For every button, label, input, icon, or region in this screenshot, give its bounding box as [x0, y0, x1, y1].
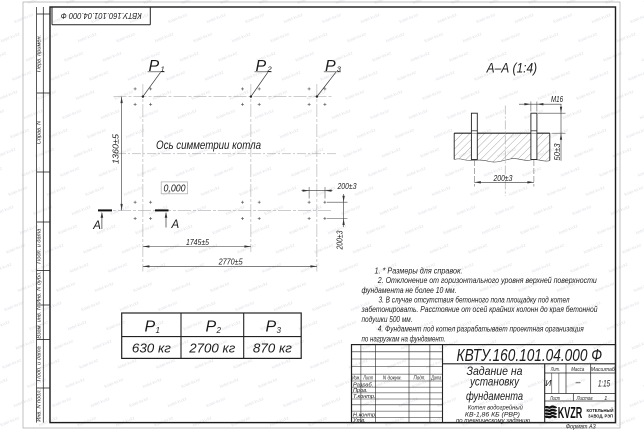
- svg-text:2: 2: [216, 326, 222, 335]
- svg-text:kotel-kv.kz: kotel-kv.kz: [631, 338, 644, 350]
- svg-text:kotel-kv.kz: kotel-kv.kz: [0, 108, 5, 120]
- svg-text:kotel-kv.kz: kotel-kv.kz: [0, 166, 3, 178]
- svg-text:kotel-kv.kz: kotel-kv.kz: [221, 319, 241, 331]
- svg-text:1. * Размеры для справок.: 1. * Размеры для справок.: [375, 266, 463, 275]
- svg-text:kotel-kv.kz: kotel-kv.kz: [391, 242, 411, 254]
- svg-text:kotel-kv.kz: kotel-kv.kz: [352, 242, 372, 254]
- svg-text:kotel-kv.kz: kotel-kv.kz: [572, 204, 592, 216]
- svg-text:kotel-kv.kz: kotel-kv.kz: [539, 31, 559, 43]
- svg-text:P: P: [149, 58, 160, 75]
- svg-text:kotel-kv.kz: kotel-kv.kz: [0, 31, 20, 43]
- svg-text:kotel-kv.kz: kotel-kv.kz: [302, 204, 322, 216]
- svg-text:kotel-kv.kz: kotel-kv.kz: [273, 300, 293, 312]
- svg-text:kotel-kv.kz: kotel-kv.kz: [399, 12, 419, 24]
- svg-text:kotel-kv.kz: kotel-kv.kz: [383, 89, 403, 101]
- svg-text:kotel-kv.kz: kotel-kv.kz: [406, 166, 426, 178]
- svg-text:kotel-kv.kz: kotel-kv.kz: [218, 50, 238, 62]
- svg-text:kotel-kv.kz: kotel-kv.kz: [622, 242, 642, 254]
- svg-text:kotel-kv.kz: kotel-kv.kz: [235, 300, 255, 312]
- svg-text:kotel-kv.kz: kotel-kv.kz: [254, 108, 274, 120]
- svg-text:kotel-kv.kz: kotel-kv.kz: [578, 31, 598, 43]
- svg-text:3. В случае отсутствия бетонн: 3. В случае отсутствия бетонного пола пл…: [379, 296, 570, 305]
- svg-text:kotel-kv.kz: kotel-kv.kz: [187, 204, 207, 216]
- svg-text:KVZR: KVZR: [558, 405, 583, 422]
- svg-text:kotel-kv.kz: kotel-kv.kz: [558, 223, 578, 235]
- svg-text:kotel-kv.kz: kotel-kv.kz: [75, 89, 95, 101]
- svg-text:Инв. N подл.: Инв. N подл.: [36, 389, 42, 422]
- svg-text:kotel-kv.kz: kotel-kv.kz: [345, 89, 365, 101]
- svg-text:kotel-kv.kz: kotel-kv.kz: [279, 127, 299, 139]
- svg-text:Перв. примен.: Перв. примен.: [36, 35, 42, 72]
- svg-text:kotel-kv.kz: kotel-kv.kz: [356, 127, 376, 139]
- svg-text:P: P: [266, 319, 277, 336]
- svg-text:kotel-kv.kz: kotel-kv.kz: [628, 70, 644, 82]
- svg-text:kotel-kv.kz: kotel-kv.kz: [219, 377, 239, 389]
- svg-text:kotel-kv.kz: kotel-kv.kz: [85, 185, 105, 197]
- svg-text:Инв. N дубл.: Инв. N дубл.: [36, 272, 42, 304]
- svg-text:kotel-kv.kz: kotel-kv.kz: [583, 242, 603, 254]
- svg-text:kotel-kv.kz: kotel-kv.kz: [204, 70, 224, 82]
- svg-text:kotel-kv.kz: kotel-kv.kz: [637, 166, 644, 178]
- svg-text:kotel-kv.kz: kotel-kv.kz: [268, 89, 288, 101]
- svg-text:kotel-kv.kz: kotel-kv.kz: [133, 281, 153, 293]
- svg-text:kotel-kv.kz: kotel-kv.kz: [0, 415, 20, 427]
- svg-text:200±3: 200±3: [335, 230, 344, 250]
- svg-text:1: 1: [604, 396, 607, 402]
- svg-text:kotel-kv.kz: kotel-kv.kz: [100, 108, 120, 120]
- svg-text:kotel-kv.kz: kotel-kv.kz: [470, 185, 490, 197]
- svg-text:kotel-kv.kz: kotel-kv.kz: [277, 185, 297, 197]
- svg-text:kotel-kv.kz: kotel-kv.kz: [435, 70, 455, 82]
- svg-text:kotel-kv.kz: kotel-kv.kz: [528, 0, 548, 5]
- svg-text:по нагрузкам на фундамент.: по нагрузкам на фундамент.: [362, 334, 446, 343]
- svg-text:Изм.: Изм.: [352, 376, 360, 382]
- svg-text:kotel-kv.kz: kotel-kv.kz: [360, 12, 380, 24]
- svg-text:kotel-kv.kz: kotel-kv.kz: [395, 127, 415, 139]
- svg-text:Лист: Лист: [549, 396, 560, 402]
- svg-text:Утв.: Утв.: [352, 418, 366, 424]
- svg-text:kotel-kv.kz: kotel-kv.kz: [58, 223, 78, 235]
- svg-text:kotel-kv.kz: kotel-kv.kz: [595, 281, 615, 293]
- svg-text:kotel-kv.kz: kotel-kv.kz: [258, 0, 278, 5]
- svg-text:kotel-kv.kz: kotel-kv.kz: [81, 300, 101, 312]
- svg-text:kotel-kv.kz: kotel-kv.kz: [17, 281, 37, 293]
- svg-text:kotel-kv.kz: kotel-kv.kz: [23, 108, 43, 120]
- svg-text:kotel-kv.kz: kotel-kv.kz: [212, 223, 232, 235]
- svg-text:kotel-kv.kz: kotel-kv.kz: [275, 242, 295, 254]
- svg-text:kotel-kv.kz: kotel-kv.kz: [129, 396, 149, 408]
- svg-text:КВТУ.160.101.04.000 Ф: КВТУ.160.101.04.000 Ф: [457, 345, 603, 365]
- svg-text:kotel-kv.kz: kotel-kv.kz: [616, 31, 636, 43]
- svg-text:kotel-kv.kz: kotel-kv.kz: [50, 70, 70, 82]
- svg-text:Справ. N: Справ. N: [36, 120, 42, 144]
- svg-text:kotel-kv.kz: kotel-kv.kz: [587, 127, 607, 139]
- svg-text:–: –: [574, 377, 581, 387]
- svg-text:kotel-kv.kz: kotel-kv.kz: [65, 377, 85, 389]
- svg-text:kotel-kv.kz: kotel-kv.kz: [179, 50, 199, 62]
- svg-text:kotel-kv.kz: kotel-kv.kz: [121, 242, 141, 254]
- svg-text:kotel-kv.kz: kotel-kv.kz: [206, 396, 226, 408]
- svg-text:kotel-kv.kz: kotel-kv.kz: [551, 70, 571, 82]
- svg-text:kotel-kv.kz: kotel-kv.kz: [108, 262, 128, 274]
- svg-text:kotel-kv.kz: kotel-kv.kz: [210, 281, 230, 293]
- svg-text:kotel-kv.kz: kotel-kv.kz: [450, 377, 470, 389]
- svg-text:kotel-kv.kz: kotel-kv.kz: [139, 108, 159, 120]
- svg-text:kotel-kv.kz: kotel-kv.kz: [175, 166, 195, 178]
- svg-text:kotel-kv.kz: kotel-kv.kz: [385, 415, 405, 427]
- svg-text:2700 кг: 2700 кг: [188, 341, 235, 355]
- svg-text:Формат А3: Формат А3: [566, 423, 596, 430]
- svg-text:kotel-kv.kz: kotel-kv.kz: [443, 223, 463, 235]
- svg-text:КВТУ.160.101.04.000 Ф: КВТУ.160.101.04.000 Ф: [60, 11, 142, 20]
- svg-text:kotel-kv.kz: kotel-kv.kz: [44, 242, 64, 254]
- svg-text:kotel-kv.kz: kotel-kv.kz: [0, 204, 14, 216]
- svg-text:kotel-kv.kz: kotel-kv.kz: [343, 146, 363, 158]
- svg-text:kotel-kv.kz: kotel-kv.kz: [12, 70, 32, 82]
- svg-text:kotel-kv.kz: kotel-kv.kz: [366, 223, 386, 235]
- svg-text:kotel-kv.kz: kotel-kv.kz: [87, 127, 107, 139]
- svg-text:kotel-kv.kz: kotel-kv.kz: [429, 242, 449, 254]
- svg-text:kotel-kv.kz: kotel-kv.kz: [64, 50, 84, 62]
- svg-text:Дата: Дата: [430, 376, 441, 382]
- svg-text:kotel-kv.kz: kotel-kv.kz: [635, 223, 644, 235]
- svg-text:kotel-kv.kz: kotel-kv.kz: [110, 204, 130, 216]
- svg-text:kotel-kv.kz: kotel-kv.kz: [27, 0, 47, 5]
- svg-text:kotel-kv.kz: kotel-kv.kz: [102, 50, 122, 62]
- svg-text:kotel-kv.kz: kotel-kv.kz: [514, 12, 534, 24]
- svg-text:kotel-kv.kz: kotel-kv.kz: [202, 127, 222, 139]
- svg-text:kotel-kv.kz: kotel-kv.kz: [181, 377, 201, 389]
- svg-text:kotel-kv.kz: kotel-kv.kz: [616, 415, 636, 427]
- svg-text:0,000: 0,000: [164, 182, 186, 194]
- svg-text:kotel-kv.kz: kotel-kv.kz: [142, 377, 162, 389]
- svg-text:kotel-kv.kz: kotel-kv.kz: [412, 0, 432, 5]
- svg-text:kotel-kv.kz: kotel-kv.kz: [372, 50, 392, 62]
- svg-text:kotel-kv.kz: kotel-kv.kz: [79, 358, 99, 370]
- svg-text:kotel-kv.kz: kotel-kv.kz: [606, 319, 626, 331]
- svg-text:kotel-kv.kz: kotel-kv.kz: [46, 185, 66, 197]
- svg-text:1745±5: 1745±5: [186, 238, 209, 247]
- svg-text:kotel-kv.kz: kotel-kv.kz: [499, 89, 519, 101]
- svg-text:kotel-kv.kz: kotel-kv.kz: [77, 415, 97, 427]
- svg-text:kotel-kv.kz: kotel-kv.kz: [318, 127, 338, 139]
- svg-text:kotel-kv.kz: kotel-kv.kz: [304, 146, 324, 158]
- svg-text:1360±5: 1360±5: [111, 134, 121, 164]
- svg-text:kotel-kv.kz: kotel-kv.kz: [633, 281, 644, 293]
- svg-text:kotel-kv.kz: kotel-kv.kz: [146, 262, 166, 274]
- svg-text:kotel-kv.kz: kotel-kv.kz: [620, 300, 640, 312]
- svg-text:забетонировать. Расстояние от: забетонировать. Расстояние от осей крайн…: [361, 305, 598, 314]
- svg-text:kotel-kv.kz: kotel-kv.kz: [206, 12, 226, 24]
- svg-text:kotel-kv.kz: kotel-kv.kz: [410, 50, 430, 62]
- svg-text:kotel-kv.kz: kotel-kv.kz: [166, 70, 186, 82]
- svg-text:kotel-kv.kz: kotel-kv.kz: [4, 300, 24, 312]
- svg-text:kotel-kv.kz: kotel-kv.kz: [119, 300, 139, 312]
- svg-text:2. Отклонение от горизонтальн: 2. Отклонение от горизонтального уровня …: [377, 276, 597, 285]
- svg-text:kotel-kv.kz: kotel-kv.kz: [92, 338, 112, 350]
- svg-text:kotel-kv.kz: kotel-kv.kz: [73, 146, 93, 158]
- svg-text:kotel-kv.kz: kotel-kv.kz: [445, 166, 465, 178]
- svg-text:kotel-kv.kz: kotel-kv.kz: [601, 108, 621, 120]
- svg-text:N докум.: N докум.: [383, 376, 402, 382]
- svg-text:P: P: [325, 58, 336, 75]
- svg-text:kotel-kv.kz: kotel-kv.kz: [468, 242, 488, 254]
- svg-text:kotel-kv.kz: kotel-kv.kz: [531, 262, 551, 274]
- svg-text:kotel-kv.kz: kotel-kv.kz: [296, 377, 316, 389]
- svg-text:kotel-kv.kz: kotel-kv.kz: [0, 377, 8, 389]
- svg-text:kotel-kv.kz: kotel-kv.kz: [177, 108, 197, 120]
- svg-text:kotel-kv.kz: kotel-kv.kz: [325, 281, 345, 293]
- svg-text:kotel-kv.kz: kotel-kv.kz: [533, 204, 553, 216]
- svg-text:kotel-kv.kz: kotel-kv.kz: [214, 166, 234, 178]
- svg-text:Подп. и дата: Подп. и дата: [36, 346, 42, 381]
- svg-text:kotel-kv.kz: kotel-kv.kz: [570, 262, 590, 274]
- svg-text:kotel-kv.kz: kotel-kv.kz: [597, 223, 617, 235]
- svg-text:kotel-kv.kz: kotel-kv.kz: [252, 166, 272, 178]
- svg-text:4. Фундамент под котел разраб: 4. Фундамент под котел разрабатывает про…: [378, 325, 585, 334]
- svg-text:kotel-kv.kz: kotel-kv.kz: [422, 89, 442, 101]
- svg-text:kotel-kv.kz: kotel-kv.kz: [160, 242, 180, 254]
- svg-text:kotel-kv.kz: kotel-kv.kz: [358, 70, 378, 82]
- svg-text:kotel-kv.kz: kotel-kv.kz: [66, 0, 86, 5]
- svg-text:kotel-kv.kz: kotel-kv.kz: [605, 0, 625, 5]
- svg-text:kotel-kv.kz: kotel-kv.kz: [0, 0, 9, 5]
- svg-text:kotel-kv.kz: kotel-kv.kz: [423, 415, 443, 427]
- svg-text:kotel-kv.kz: kotel-kv.kz: [566, 0, 586, 5]
- svg-text:kotel-kv.kz: kotel-kv.kz: [250, 223, 270, 235]
- svg-text:kotel-kv.kz: kotel-kv.kz: [591, 12, 611, 24]
- svg-text:kotel-kv.kz: kotel-kv.kz: [322, 12, 342, 24]
- svg-text:kotel-kv.kz: kotel-kv.kz: [35, 146, 55, 158]
- svg-text:kotel-kv.kz: kotel-kv.kz: [630, 12, 644, 24]
- svg-text:kotel-kv.kz: kotel-kv.kz: [310, 358, 330, 370]
- svg-text:3: 3: [337, 65, 342, 74]
- svg-text:kotel-kv.kz: kotel-kv.kz: [123, 185, 143, 197]
- svg-text:kotel-kv.kz: kotel-kv.kz: [37, 89, 57, 101]
- svg-text:kotel-kv.kz: kotel-kv.kz: [239, 185, 259, 197]
- svg-text:kotel-kv.kz: kotel-kv.kz: [591, 396, 611, 408]
- svg-text:kotel-kv.kz: kotel-kv.kz: [264, 204, 284, 216]
- svg-text:kotel-kv.kz: kotel-kv.kz: [67, 319, 87, 331]
- svg-text:kotel-kv.kz: kotel-kv.kz: [624, 185, 644, 197]
- svg-text:Лит.: Лит.: [550, 367, 560, 373]
- svg-text:kotel-kv.kz: kotel-kv.kz: [437, 12, 457, 24]
- svg-text:kotel-kv.kz: kotel-kv.kz: [398, 396, 418, 408]
- svg-text:kotel-kv.kz: kotel-kv.kz: [370, 108, 390, 120]
- svg-text:kotel-kv.kz: kotel-kv.kz: [614, 89, 634, 101]
- svg-text:КОТЕЛЬНЫЙ: КОТЕЛЬНЫЙ: [587, 406, 614, 413]
- svg-text:kotel-kv.kz: kotel-kv.kz: [481, 223, 501, 235]
- svg-text:kotel-kv.kz: kotel-kv.kz: [308, 415, 328, 427]
- svg-text:kotel-kv.kz: kotel-kv.kz: [387, 358, 407, 370]
- svg-text:kotel-kv.kz: kotel-kv.kz: [283, 396, 303, 408]
- svg-text:kotel-kv.kz: kotel-kv.kz: [495, 204, 515, 216]
- svg-text:kotel-kv.kz: kotel-kv.kz: [169, 338, 189, 350]
- svg-text:kotel-kv.kz: kotel-kv.kz: [381, 146, 401, 158]
- svg-text:kotel-kv.kz: kotel-kv.kz: [104, 0, 124, 5]
- svg-text:kotel-kv.kz: kotel-kv.kz: [216, 108, 236, 120]
- svg-text:kotel-kv.kz: kotel-kv.kz: [476, 12, 496, 24]
- svg-text:kotel-kv.kz: kotel-kv.kz: [158, 300, 178, 312]
- svg-text:kotel-kv.kz: kotel-kv.kz: [167, 396, 187, 408]
- svg-text:kotel-kv.kz: kotel-kv.kz: [323, 338, 343, 350]
- svg-text:kotel-kv.kz: kotel-kv.kz: [553, 12, 573, 24]
- svg-text:kotel-kv.kz: kotel-kv.kz: [266, 146, 286, 158]
- svg-text:kotel-kv.kz: kotel-kv.kz: [117, 358, 137, 370]
- svg-text:kotel-kv.kz: kotel-kv.kz: [2, 358, 22, 370]
- svg-text:kotel-kv.kz: kotel-kv.kz: [71, 204, 91, 216]
- svg-text:kotel-kv.kz: kotel-kv.kz: [321, 396, 341, 408]
- svg-text:kotel-kv.kz: kotel-kv.kz: [608, 262, 628, 274]
- svg-text:kotel-kv.kz: kotel-kv.kz: [248, 281, 268, 293]
- svg-text:Масштаб: Масштаб: [591, 367, 616, 373]
- svg-text:установку: установку: [469, 375, 520, 389]
- svg-text:kotel-kv.kz: kotel-kv.kz: [154, 415, 174, 427]
- svg-text:kotel-kv.kz: kotel-kv.kz: [10, 127, 30, 139]
- svg-text:50±3: 50±3: [553, 143, 562, 161]
- svg-text:kotel-kv.kz: kotel-kv.kz: [339, 262, 359, 274]
- svg-text:kotel-kv.kz: kotel-kv.kz: [368, 166, 388, 178]
- svg-text:630 кг: 630 кг: [132, 341, 171, 355]
- svg-text:kotel-kv.kz: kotel-kv.kz: [576, 89, 596, 101]
- svg-text:kotel-kv.kz: kotel-kv.kz: [424, 31, 444, 43]
- svg-text:kotel-kv.kz: kotel-kv.kz: [281, 70, 301, 82]
- svg-text:kotel-kv.kz: kotel-kv.kz: [83, 242, 103, 254]
- svg-text:kotel-kv.kz: kotel-kv.kz: [312, 300, 332, 312]
- svg-text:kotel-kv.kz: kotel-kv.kz: [501, 31, 521, 43]
- svg-text:1:15: 1:15: [598, 378, 610, 389]
- svg-text:kotel-kv.kz: kotel-kv.kz: [237, 242, 257, 254]
- svg-text:kotel-kv.kz: kotel-kv.kz: [98, 166, 118, 178]
- svg-text:1: 1: [156, 326, 160, 335]
- svg-text:kotel-kv.kz: kotel-kv.kz: [508, 185, 528, 197]
- svg-text:kotel-kv.kz: kotel-kv.kz: [8, 185, 28, 197]
- svg-text:kotel-kv.kz: kotel-kv.kz: [291, 166, 311, 178]
- svg-text:kotel-kv.kz: kotel-kv.kz: [181, 0, 201, 5]
- svg-text:kotel-kv.kz: kotel-kv.kz: [15, 338, 35, 350]
- svg-text:kotel-kv.kz: kotel-kv.kz: [408, 108, 428, 120]
- svg-text:870 кг: 870 кг: [253, 341, 292, 355]
- svg-text:Ось симметрии котла: Ось симметрии котла: [156, 140, 261, 152]
- svg-text:A: A: [92, 220, 101, 232]
- svg-text:kotel-kv.kz: kotel-kv.kz: [69, 262, 89, 274]
- svg-text:kotel-kv.kz: kotel-kv.kz: [62, 108, 82, 120]
- svg-text:kotel-kv.kz: kotel-kv.kz: [404, 223, 424, 235]
- svg-text:kotel-kv.kz: kotel-kv.kz: [115, 415, 135, 427]
- svg-text:kotel-kv.kz: kotel-kv.kz: [331, 108, 351, 120]
- svg-text:kotel-kv.kz: kotel-kv.kz: [545, 242, 565, 254]
- svg-text:kotel-kv.kz: kotel-kv.kz: [420, 146, 440, 158]
- svg-text:kotel-kv.kz: kotel-kv.kz: [229, 89, 249, 101]
- svg-text:kotel-kv.kz: kotel-kv.kz: [460, 89, 480, 101]
- svg-text:kotel-kv.kz: kotel-kv.kz: [385, 31, 405, 43]
- svg-text:200±3: 200±3: [493, 173, 513, 183]
- svg-text:kotel-kv.kz: kotel-kv.kz: [618, 358, 638, 370]
- svg-text:kotel-kv.kz: kotel-kv.kz: [262, 262, 282, 274]
- svg-text:ЗАВОД, РЭП: ЗАВОД, РЭП: [588, 413, 613, 418]
- svg-text:kotel-kv.kz: kotel-kv.kz: [0, 319, 10, 331]
- svg-text:kotel-kv.kz: kotel-kv.kz: [271, 358, 291, 370]
- svg-text:kotel-kv.kz: kotel-kv.kz: [171, 281, 191, 293]
- svg-text:kotel-kv.kz: kotel-kv.kz: [456, 204, 476, 216]
- svg-text:kotel-kv.kz: kotel-kv.kz: [0, 262, 12, 274]
- svg-text:kotel-kv.kz: kotel-kv.kz: [48, 127, 68, 139]
- svg-text:kotel-kv.kz: kotel-kv.kz: [397, 70, 417, 82]
- svg-text:M16: M16: [551, 95, 563, 104]
- svg-text:kotel-kv.kz: kotel-kv.kz: [77, 31, 97, 43]
- svg-text:kotel-kv.kz: kotel-kv.kz: [168, 12, 188, 24]
- svg-text:kotel-kv.kz: kotel-kv.kz: [220, 0, 240, 5]
- svg-text:kotel-kv.kz: kotel-kv.kz: [196, 300, 216, 312]
- svg-text:Масса: Масса: [571, 367, 584, 373]
- svg-text:kotel-kv.kz: kotel-kv.kz: [314, 242, 334, 254]
- svg-text:kotel-kv.kz: kotel-kv.kz: [244, 396, 264, 408]
- svg-text:kotel-kv.kz: kotel-kv.kz: [245, 12, 265, 24]
- svg-text:Котел водогрейный: Котел водогрейный: [468, 403, 523, 411]
- svg-text:kotel-kv.kz: kotel-kv.kz: [329, 166, 349, 178]
- svg-text:A: A: [171, 219, 180, 231]
- svg-text:kotel-kv.kz: kotel-kv.kz: [283, 12, 303, 24]
- svg-text:kotel-kv.kz: kotel-kv.kz: [333, 50, 353, 62]
- svg-text:Подп.: Подп.: [414, 376, 426, 382]
- svg-text:kotel-kv.kz: kotel-kv.kz: [639, 108, 644, 120]
- svg-text:kotel-kv.kz: kotel-kv.kz: [585, 185, 605, 197]
- svg-text:kotel-kv.kz: kotel-kv.kz: [127, 70, 147, 82]
- svg-text:kotel-kv.kz: kotel-kv.kz: [547, 185, 567, 197]
- svg-text:kotel-kv.kz: kotel-kv.kz: [437, 396, 457, 408]
- svg-text:kotel-kv.kz: kotel-kv.kz: [447, 108, 467, 120]
- svg-text:фундамента: фундамента: [466, 389, 523, 403]
- svg-text:kotel-kv.kz: kotel-kv.kz: [225, 204, 245, 216]
- svg-text:kotel-kv.kz: kotel-kv.kz: [269, 415, 289, 427]
- svg-text:P: P: [256, 58, 267, 75]
- svg-text:kotel-kv.kz: kotel-kv.kz: [56, 281, 76, 293]
- svg-text:kotel-kv.kz: kotel-kv.kz: [114, 89, 134, 101]
- svg-text:200±3: 200±3: [337, 182, 357, 191]
- svg-text:Т.контр.: Т.контр.: [353, 394, 376, 400]
- svg-text:И: И: [545, 378, 552, 388]
- svg-text:kotel-kv.kz: kotel-kv.kz: [629, 396, 644, 408]
- svg-text:kotel-kv.kz: kotel-kv.kz: [183, 319, 203, 331]
- svg-text:kotel-kv.kz: kotel-kv.kz: [14, 12, 34, 24]
- svg-text:kotel-kv.kz: kotel-kv.kz: [89, 70, 109, 82]
- svg-text:kotel-kv.kz: kotel-kv.kz: [154, 31, 174, 43]
- svg-text:kotel-kv.kz: kotel-kv.kz: [354, 185, 374, 197]
- svg-text:kotel-kv.kz: kotel-kv.kz: [493, 262, 513, 274]
- svg-text:Листов: Листов: [576, 396, 593, 402]
- svg-text:kotel-kv.kz: kotel-kv.kz: [297, 0, 317, 5]
- svg-text:2770±5: 2770±5: [218, 258, 243, 267]
- svg-text:kotel-kv.kz: kotel-kv.kz: [137, 166, 157, 178]
- svg-text:kotel-kv.kz: kotel-kv.kz: [335, 0, 355, 5]
- svg-text:kotel-kv.kz: kotel-kv.kz: [574, 146, 594, 158]
- svg-text:фундамента не более 10 мм.: фундамента не более 10 мм.: [362, 286, 457, 295]
- svg-text:kotel-kv.kz: kotel-kv.kz: [156, 358, 176, 370]
- svg-text:kotel-kv.kz: kotel-kv.kz: [0, 223, 1, 235]
- svg-text:kotel-kv.kz: kotel-kv.kz: [94, 281, 114, 293]
- svg-text:kotel-kv.kz: kotel-kv.kz: [143, 0, 163, 5]
- svg-text:kotel-kv.kz: kotel-kv.kz: [300, 262, 320, 274]
- svg-text:kotel-kv.kz: kotel-kv.kz: [233, 358, 253, 370]
- svg-text:kotel-kv.kz: kotel-kv.kz: [295, 50, 315, 62]
- svg-text:kotel-kv.kz: kotel-kv.kz: [104, 377, 124, 389]
- svg-text:kotel-kv.kz: kotel-kv.kz: [52, 396, 72, 408]
- svg-text:kotel-kv.kz: kotel-kv.kz: [431, 185, 451, 197]
- svg-text:kotel-kv.kz: kotel-kv.kz: [506, 242, 526, 254]
- svg-text:по техническому заданию: по техническому заданию: [456, 416, 530, 424]
- svg-text:kotel-kv.kz: kotel-kv.kz: [194, 358, 214, 370]
- svg-text:kotel-kv.kz: kotel-kv.kz: [564, 50, 584, 62]
